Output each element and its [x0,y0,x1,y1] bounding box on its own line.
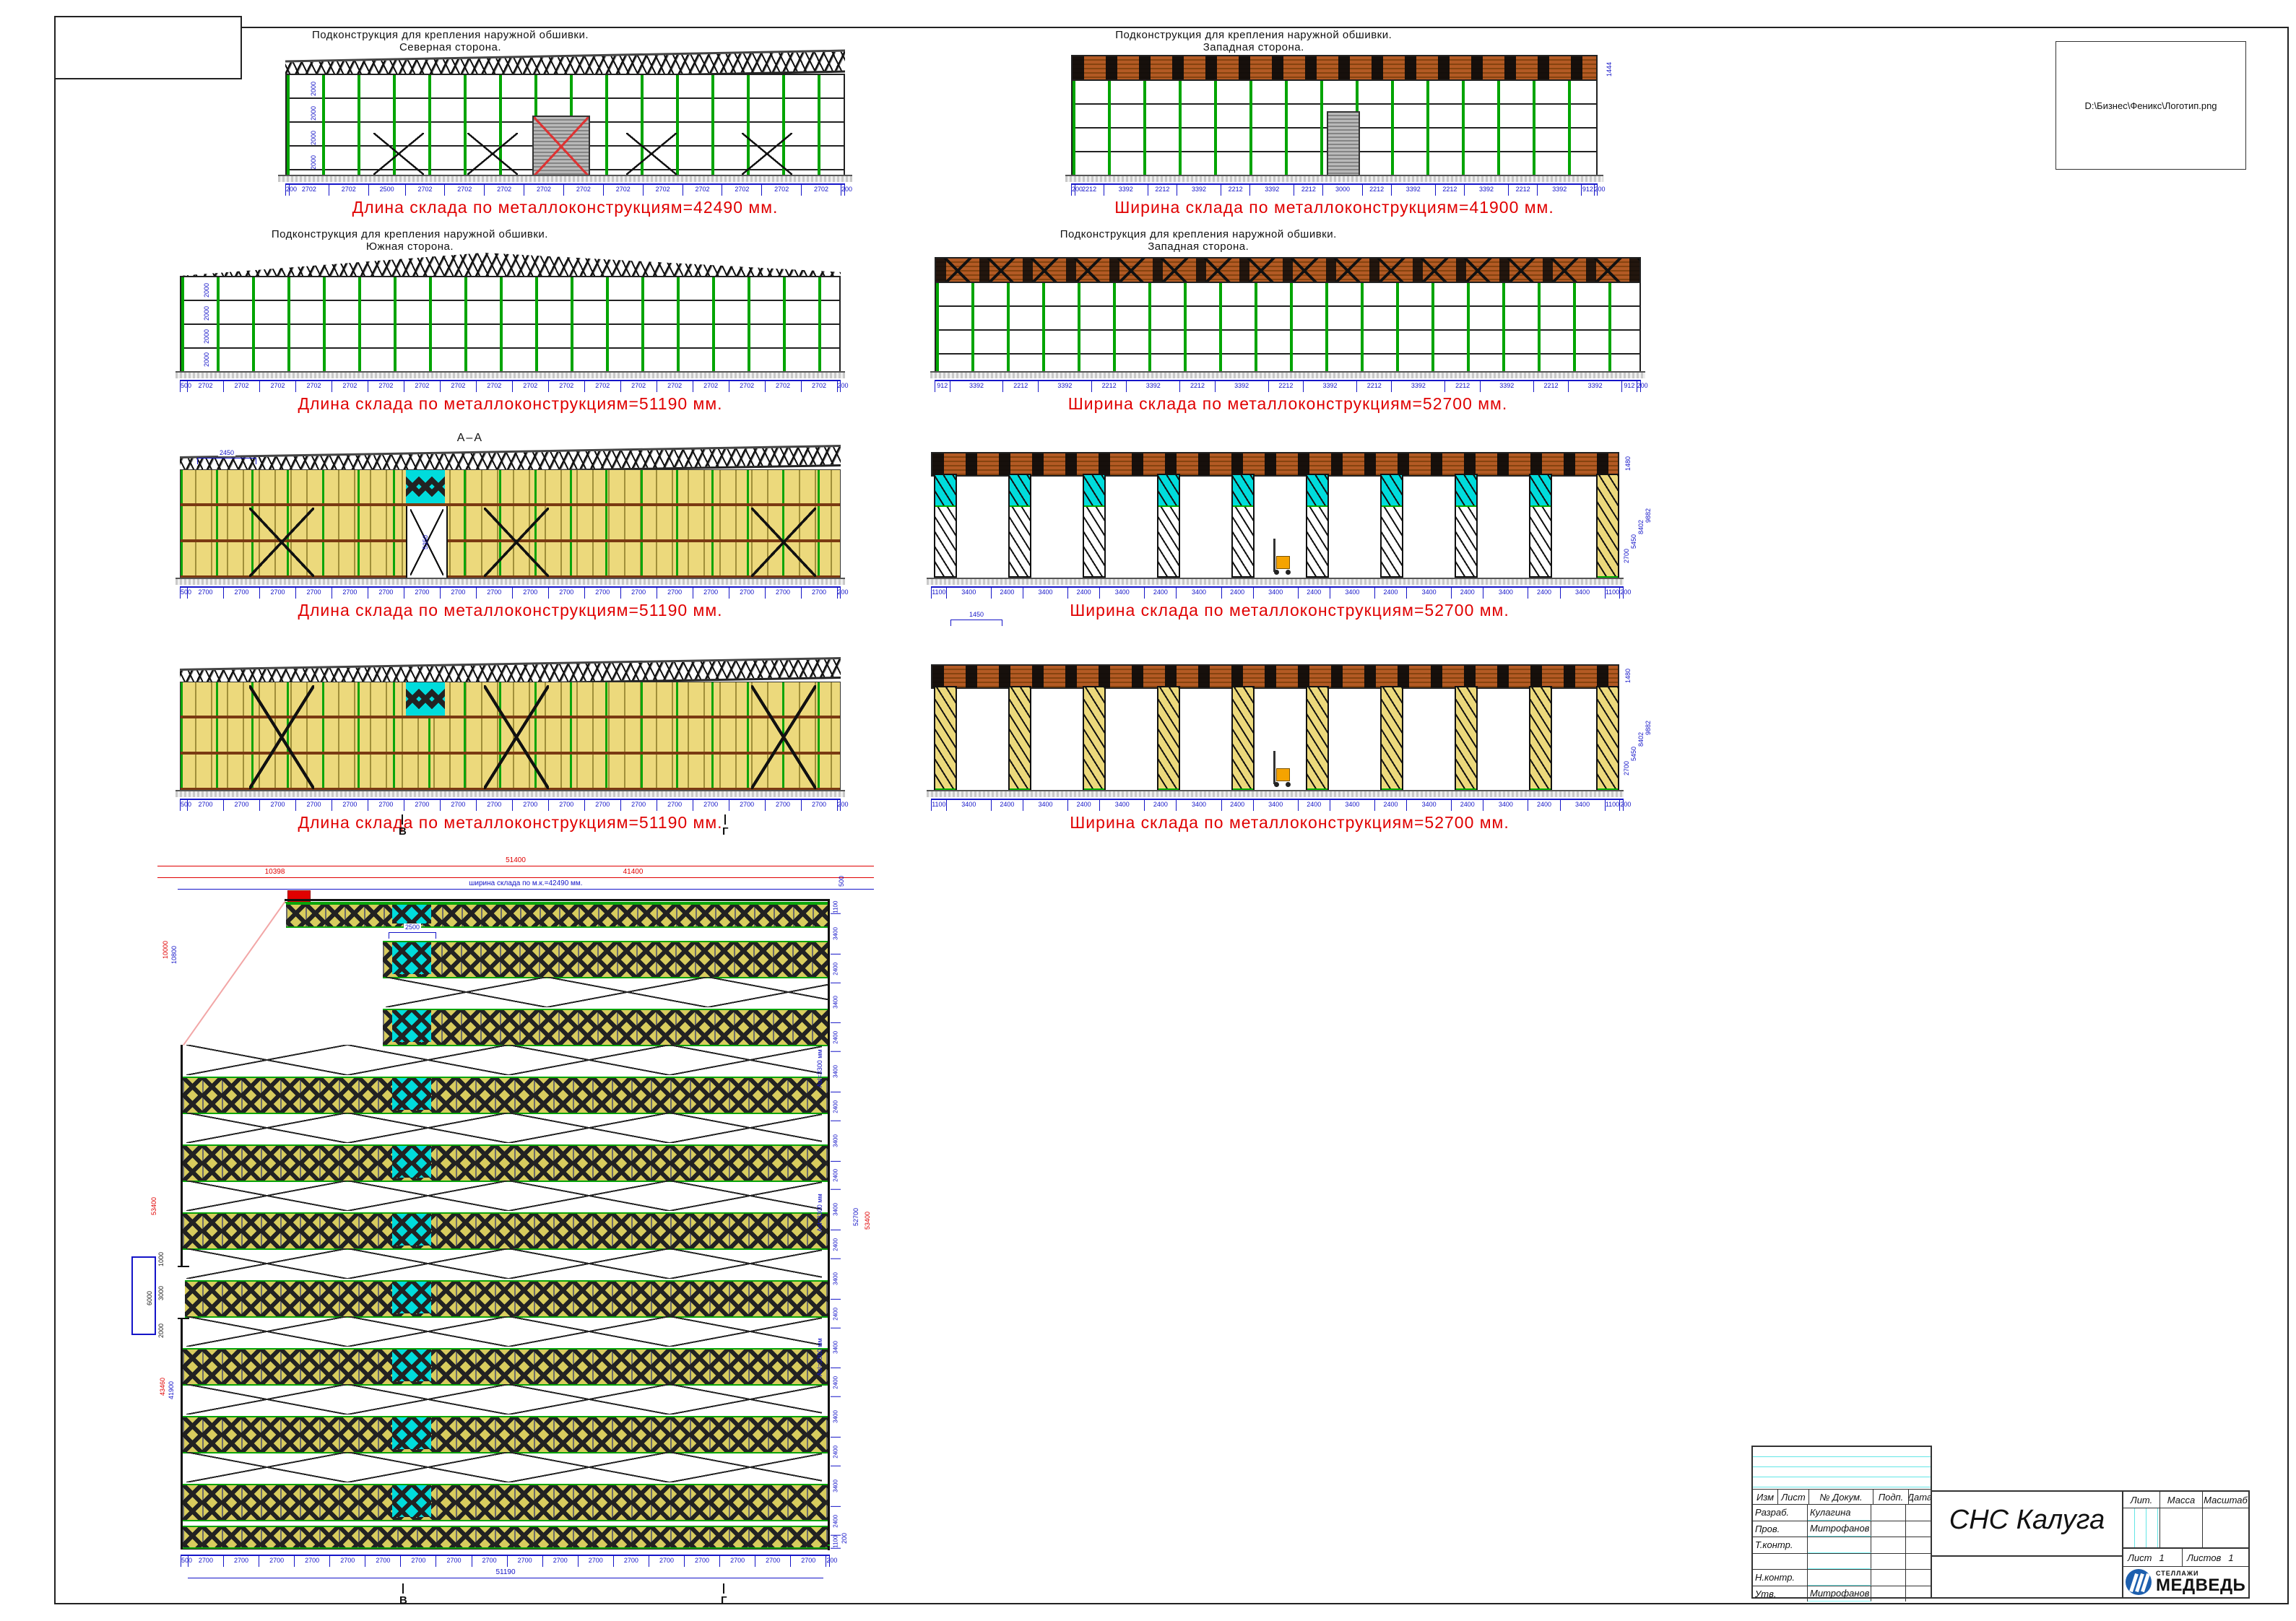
rack-row-pair [183,1416,828,1453]
dim-chain: 5002700270027002700270027002700270027002… [180,586,841,599]
ground-line [927,790,1624,797]
vdim: 8402 [1637,687,1645,791]
logo-path-box: D:\Бизнес\Феникс\Логотип.png [2055,41,2246,170]
section-marker: Г [722,814,729,838]
mass-label: Масса [2160,1492,2203,1508]
vdim: 1480 [1624,452,1632,475]
cyan-bay [406,470,445,503]
vdim: 9882 [1645,452,1652,579]
sheet-number: 1 [2159,1552,2164,1563]
titleblock-center: СНС Калуга [1932,1490,2123,1599]
cyan-bay [392,1350,431,1381]
door-dim: 1000 [157,1249,165,1269]
ground-line [927,578,1624,585]
wall-grid: 2000200020002000 [285,74,845,178]
brace-x [249,685,314,789]
rack-row-pair [183,1484,828,1521]
roof-truss-gable [180,253,841,276]
height-dims: 2000200020002000 [203,279,213,371]
cyan-bay [392,1078,431,1110]
vdim: 8402 [1637,475,1645,579]
cyan-bay [406,682,445,716]
aisle-label: Asl=3300 мм [816,1325,824,1390]
vdim: 5450 [1630,504,1638,579]
rack-row-pair [183,1280,828,1318]
ground-line [176,578,845,585]
brace-x [467,133,518,175]
sheets-number: 1 [2228,1552,2233,1563]
elevation-west-mid: Подконструкция для крепления наружной об… [930,228,1645,419]
cyan-bay [392,1146,431,1178]
bay-dim: 2500 [389,932,436,939]
vdim: 43460 [159,1354,167,1419]
cyan-bay [392,942,431,974]
cyan-bay [392,1214,431,1246]
brace-x [742,133,792,175]
elevation-south: Подконструкция для крепления наружной об… [176,228,845,419]
dim-chain: 9123392221233922212339222123392221233922… [935,380,1641,392]
cyan-bay [392,1485,431,1517]
door-jamb [178,1318,189,1319]
section-marker: Г [721,1583,727,1607]
cyan-bay [392,1282,431,1313]
signature-row [1753,1554,1931,1570]
parapet-band [935,257,1641,284]
plan-dim-right: 41400 [392,877,874,886]
total-dim-text: Ширина склада по металлоконструкциям=527… [927,601,1652,620]
forklift [1270,751,1295,788]
signature-row: Н.контр. [1753,1570,1931,1586]
plan-dim-left: 10398 [157,877,392,886]
dim-chain: 5002700270027002700270027002700270027002… [181,1555,830,1567]
view-title: Подконструкция для крепления наружной об… [1065,29,1442,54]
vdim-total-blue: 52700 [852,1173,860,1260]
corner-diagonal [183,901,286,1046]
dim-chain: 1100340024003400240034002400340024003400… [931,799,1624,811]
scale-label: Масштаб [2203,1492,2248,1508]
sheets-label: Листов [2187,1552,2221,1563]
rack-frames [931,474,1619,578]
logo-path-label: D:\Бизнес\Феникс\Логотип.png [2084,100,2217,111]
lit-label: Лит. [2123,1492,2160,1508]
parapet-band [1071,55,1598,82]
vdim-total-red: 53400 [864,1173,872,1267]
roof-band [931,664,1619,689]
rack-row [183,1526,828,1549]
wall-grid [1071,79,1598,178]
rack-row-pair [383,1009,828,1046]
rack-row-pair [183,1144,828,1182]
section-label: А–А [176,432,765,445]
door-dim: 2000 [157,1316,165,1345]
total-dim-text: Длина склада по металлоконструкциям=5119… [176,394,845,414]
ground-line [176,790,845,797]
door-dim-total: 6000 [146,1259,154,1338]
brace-x [626,133,677,175]
rack-row-pair [183,1077,828,1114]
rack-elevation: 5350 [180,469,841,579]
plan-bottom-total: 51190 [188,1578,823,1586]
rack-tier [181,470,840,506]
title-block: ИзмЛист№ Докум.Подп.Дата Разраб. Кулагин… [1751,1446,2250,1599]
opening-dim: 5350 [422,513,430,571]
cyan-bay [392,905,431,924]
cyan-bay [392,1417,431,1449]
vdim: 2700 [1623,533,1631,579]
opening: 5350 [406,506,448,578]
vdim: 200 [841,1527,849,1549]
gate [1327,111,1360,178]
revision-rows [1753,1447,1931,1490]
vdim: 1480 [1624,664,1632,687]
section-b-cross: 1480 9882 8402 5450 2700 110034002400340… [927,644,1652,835]
vdim: 10800 [170,921,178,989]
detail-dim: 1450 [950,620,1002,626]
vdim: 41900 [168,1354,176,1426]
roof-band [931,452,1619,477]
signature-rows: Разраб. Кулагина Пров. Митрофанов Т.конт… [1753,1505,1931,1602]
wall-grid [935,282,1641,374]
brace-x [249,508,314,577]
floor-brace-row [186,1384,822,1414]
ground-line [176,371,845,378]
door-dim: 3000 [157,1273,165,1313]
rack-frames [931,686,1619,790]
rack-row [286,903,828,928]
company-logo: СТЕЛЛАЖИ МЕДВЕДЬ [2126,1567,2250,1597]
view-title: Подконструкция для крепления наружной об… [176,228,644,253]
titleblock-left-table: ИзмЛист№ Докум.Подп.Дата Разраб. Кулагин… [1751,1446,1932,1599]
drawing-sheet: D:\Бизнес\Феникс\Логотип.png Подконструк… [0,0,2296,1621]
floor-brace-row [186,1181,822,1211]
wall-top [285,899,829,901]
vdim: 5450 [1630,716,1638,791]
forklift [1270,539,1295,576]
door-opening [179,1267,185,1318]
signature-row: Пров. Митрофанов [1753,1521,1931,1538]
brace-x [751,685,816,789]
view-title: Подконструкция для крепления наружной об… [930,228,1467,253]
ground-line [1065,175,1603,182]
wall-grid: 2000200020002000 [180,276,841,374]
gate [532,116,590,178]
dim-chain: 5002700270027002700270027002700270027002… [180,799,841,811]
plan-view: 51400 10398 41400 ширина склада по м.к.=… [143,856,883,1610]
wall-right [828,899,830,1550]
signature-row: Утв. Митрофанов [1753,1586,1931,1602]
total-dim-text: Ширина склада по металлоконструкциям=527… [930,394,1645,414]
brace-x [484,508,549,577]
aisle-label: Asl=3300 мм [816,1181,824,1246]
door-jamb [178,1266,189,1267]
rack-elevation [180,682,841,791]
dim-chain: 5002702270227022702270227022702270227022… [180,380,841,392]
parapet-height-dim: 1444 [1606,55,1613,84]
section-marker: В [399,1583,407,1607]
dim-chain: 2002702270225002702270227022702270227022… [285,183,845,196]
floor-brace-row [186,1113,822,1143]
vdim: 500 [838,869,846,893]
vdim: 10000 [162,921,170,978]
logo-big-text: МЕДВЕДЬ [2156,1577,2245,1594]
signature-row: Т.контр. [1753,1537,1931,1554]
vdim: 2700 [1623,745,1631,791]
brace-x [751,508,816,577]
aisle-label: Asl=3300 мм [816,1036,824,1101]
floor-brace-row [186,1452,822,1482]
floor-brace-row [186,1248,822,1279]
revision-header: ИзмЛист№ Докум.Подп.Дата [1753,1490,1931,1505]
dim-chain: 2002212339222123392221233922212300022123… [1071,183,1598,196]
cyan-bay [392,1010,431,1042]
elevation-west-top: Подконструкция для крепления наружной об… [1065,29,1603,215]
signature-row: Разраб. Кулагина [1753,1505,1931,1521]
ground-line [278,175,852,182]
plan-width-text: ширина склада по м.к.=42490 мм. [178,889,874,898]
sheet-label: Лист [2128,1552,2152,1563]
height-dims: 2000200020002000 [310,77,320,175]
top-left-stamp-box [54,16,242,79]
total-dim-text: Ширина склада по металлоконструкциям=419… [1065,198,1603,217]
rack-row-pair [183,1348,828,1386]
total-dim-text: Длина склада по металлоконструкциям=5119… [176,813,845,833]
floor-brace-row [386,977,828,1007]
floor-brace-row [186,1316,822,1347]
vdim: 9882 [1645,664,1652,791]
rack-row-pair [383,941,828,978]
total-dim-text: Длина склада по металлоконструкциям=4249… [278,198,852,217]
rack-row-pair [183,1212,828,1250]
total-dim-text: Ширина склада по металлоконструкциям=527… [927,813,1652,833]
dim-chain: 1100340024003400240034002400340024003400… [931,586,1624,599]
vdim: 53400 [150,1166,158,1246]
ground-line [930,371,1645,378]
bay-dim: 2450 [197,458,256,464]
elevation-north: Подконструкция для крепления наружной об… [278,29,852,215]
document-title: СНС Калуга [1932,1505,2122,1536]
brace-x [484,685,549,789]
section-aa-long: А–А 2450 5350 50027002700270027002700270… [176,432,845,622]
bear-claw-icon [2126,1569,2152,1595]
right-dim-chain: 1100340024003400240034002400340024003400… [831,900,841,1549]
view-title: Подконструкция для крепления наружной об… [278,29,623,54]
total-dim-text: Длина склада по металлоконструкциям=5119… [176,601,845,620]
brace-x [373,133,424,175]
section-aa-cross: 1480 9882 8402 5450 2700 110034002400340… [927,432,1652,622]
section-marker: В [399,814,407,838]
floor-brace-row [186,1045,822,1075]
section-b-long: 5002700270027002700270027002700270027002… [176,644,845,835]
